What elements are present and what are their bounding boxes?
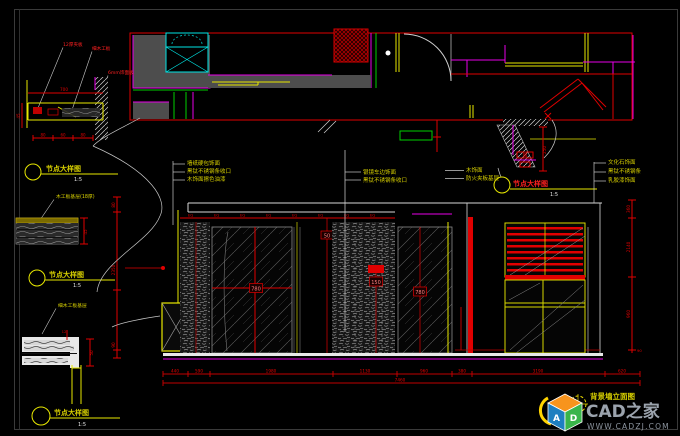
svg-text:EQ: EQ xyxy=(214,214,219,218)
svg-text:细木工板: 细木工板 xyxy=(92,45,111,52)
svg-text:50: 50 xyxy=(324,234,330,240)
plan-hatched-fixture xyxy=(334,29,368,62)
svg-text:80: 80 xyxy=(80,133,86,138)
svg-text:780: 780 xyxy=(415,290,425,296)
svg-text:440: 440 xyxy=(171,369,179,374)
plan-door-swing xyxy=(404,34,451,81)
svg-text:1:5: 1:5 xyxy=(74,177,82,183)
watermark-url: WWW.CADZJ.COM xyxy=(587,422,670,431)
svg-text:墙纸硬包饰面: 墙纸硬包饰面 xyxy=(187,159,221,167)
dim-right-chain: 360 2140 960 90 xyxy=(626,200,642,353)
plan-angled-console xyxy=(540,79,606,119)
leader-curves xyxy=(93,118,556,327)
dim-box-3: 150 xyxy=(370,277,383,286)
detail-2: 木工板基层(18厚) 45 xyxy=(16,193,95,244)
svg-text:1:5: 1:5 xyxy=(73,283,81,289)
callout-right: 文化石饰面 黑钛不锈钢条 乳胶漆饰面 xyxy=(594,158,642,203)
svg-text:45: 45 xyxy=(16,113,21,119)
svg-text:780: 780 xyxy=(251,287,261,293)
dim-left-chain: 80 2350 90 xyxy=(111,197,121,358)
svg-text:黑钛不锈钢条收口: 黑钛不锈钢条收口 xyxy=(363,176,407,184)
svg-text:3190: 3190 xyxy=(533,369,544,374)
stone-pier-2 xyxy=(332,222,395,353)
red-marker xyxy=(368,265,384,273)
cube-letter-a: A xyxy=(553,414,560,424)
detail-title-1: 节点大样图 1:5 xyxy=(25,164,118,183)
svg-text:60: 60 xyxy=(60,133,66,138)
detail-title-4: 节点大样图 1:5 xyxy=(494,177,597,198)
svg-text:乳胶漆饰面: 乳胶漆饰面 xyxy=(608,176,636,184)
svg-text:木饰面擦色油漆: 木饰面擦色油漆 xyxy=(187,175,226,183)
mirror-panel-2: 780 xyxy=(398,222,452,353)
callout-center: 银镜车边饰面 黑钛不锈钢条收口 xyxy=(345,168,407,184)
svg-text:1:5: 1:5 xyxy=(78,422,86,428)
svg-text:EQ: EQ xyxy=(240,214,245,218)
stone-pier-1 xyxy=(180,222,210,353)
svg-text:50: 50 xyxy=(89,350,94,356)
window-lower xyxy=(505,280,585,353)
svg-text:木工板基层(18厚): 木工板基层(18厚) xyxy=(56,193,95,200)
svg-text:90: 90 xyxy=(637,348,642,353)
svg-text:6mm饰面板: 6mm饰面板 xyxy=(108,69,134,76)
svg-text:木饰面: 木饰面 xyxy=(466,166,483,174)
svg-text:90: 90 xyxy=(111,342,116,348)
svg-text:1130: 1130 xyxy=(360,369,371,374)
svg-text:EQ: EQ xyxy=(266,214,271,218)
svg-text:960: 960 xyxy=(626,310,631,318)
detail4-title: 节点大样图 xyxy=(513,179,548,188)
mirror-panel-1: 780 xyxy=(212,227,292,353)
svg-text:960: 960 xyxy=(420,369,428,374)
svg-text:12厚夹板: 12厚夹板 xyxy=(63,41,83,48)
callout-left: 墙纸硬包饰面 黑钛不锈钢条收口 木饰面擦色油漆 xyxy=(173,159,231,225)
svg-text:12: 12 xyxy=(62,329,67,334)
svg-text:620: 620 xyxy=(618,369,626,374)
detail4-scale: 1:5 xyxy=(550,192,558,198)
svg-text:黑钛不锈钢条: 黑钛不锈钢条 xyxy=(608,167,642,175)
cad-drawing-canvas[interactable]: 250 节点大样图 1:5 EQ EQ EQ EQ EQ EQ EQ EQ xyxy=(0,0,680,436)
dim-box-1: 780 xyxy=(250,284,263,293)
watermark-cube-logo: A D xyxy=(548,394,582,431)
detail-4: 250 xyxy=(497,125,596,177)
window-wall xyxy=(455,203,600,353)
svg-text:节点大样图: 节点大样图 xyxy=(46,164,81,173)
detail-title-3: 节点大样图 1:5 xyxy=(32,407,120,428)
dim-bottom-chain: 440 590 1980 1130 960 380 3190 620 xyxy=(163,369,640,378)
callout-window: 木饰面 防火夹板基层 xyxy=(445,166,500,182)
detail-title-2: 节点大样图 1:5 xyxy=(29,270,115,289)
svg-text:7460: 7460 xyxy=(395,378,406,383)
svg-text:节点大样图: 节点大样图 xyxy=(54,408,89,417)
svg-text:节点大样图: 节点大样图 xyxy=(49,270,84,279)
svg-text:45: 45 xyxy=(83,229,88,235)
svg-text:80: 80 xyxy=(111,202,116,208)
svg-text:细木工板基层: 细木工板基层 xyxy=(58,302,87,309)
svg-text:700: 700 xyxy=(60,87,68,92)
eq-marks: EQ EQ EQ EQ EQ EQ EQ EQ xyxy=(188,214,375,218)
svg-text:银镜车边饰面: 银镜车边饰面 xyxy=(363,168,397,176)
dim-box-2: 50 xyxy=(321,231,333,240)
dim-bottom-total: 7460 xyxy=(163,378,640,387)
svg-text:150: 150 xyxy=(371,280,381,286)
red-accent-bar xyxy=(468,217,473,353)
plan-light-dot xyxy=(386,51,391,56)
svg-text:防火夹板基层: 防火夹板基层 xyxy=(466,174,500,182)
window-blinds xyxy=(505,223,585,277)
detail-3: 细木工板基层 12 50 xyxy=(22,302,94,404)
svg-text:EQ: EQ xyxy=(188,214,193,218)
svg-text:1980: 1980 xyxy=(266,369,277,374)
svg-text:380: 380 xyxy=(458,369,466,374)
watermark-brand: CAD之家 xyxy=(586,401,660,422)
plan-view xyxy=(130,29,635,120)
svg-text:EQ: EQ xyxy=(318,214,323,218)
detail4-dim: 250 xyxy=(542,146,547,154)
svg-text:EQ: EQ xyxy=(292,214,297,218)
window-sill xyxy=(505,275,585,280)
baseline xyxy=(163,353,603,356)
svg-text:80: 80 xyxy=(40,133,46,138)
cube-letter-d: D xyxy=(570,414,577,424)
svg-text:文化石饰面: 文化石饰面 xyxy=(608,158,636,166)
dim-box-4: 780 xyxy=(414,287,427,296)
svg-text:黑钛不锈钢条收口: 黑钛不锈钢条收口 xyxy=(187,167,231,175)
svg-text:EQ: EQ xyxy=(370,214,375,218)
plan-green-box xyxy=(400,131,432,140)
plan-cabinet xyxy=(166,33,208,72)
svg-text:590: 590 xyxy=(195,369,203,374)
elevation-title: 背景墙立面图 xyxy=(590,391,635,401)
svg-text:360: 360 xyxy=(626,205,631,213)
cad-drawing: 250 节点大样图 1:5 EQ EQ EQ EQ EQ EQ EQ EQ xyxy=(0,0,680,436)
svg-text:2140: 2140 xyxy=(626,241,631,252)
detail-1: 12厚夹板 细木工板 6mm饰面板 700 45 80 60 80 xyxy=(16,41,134,141)
